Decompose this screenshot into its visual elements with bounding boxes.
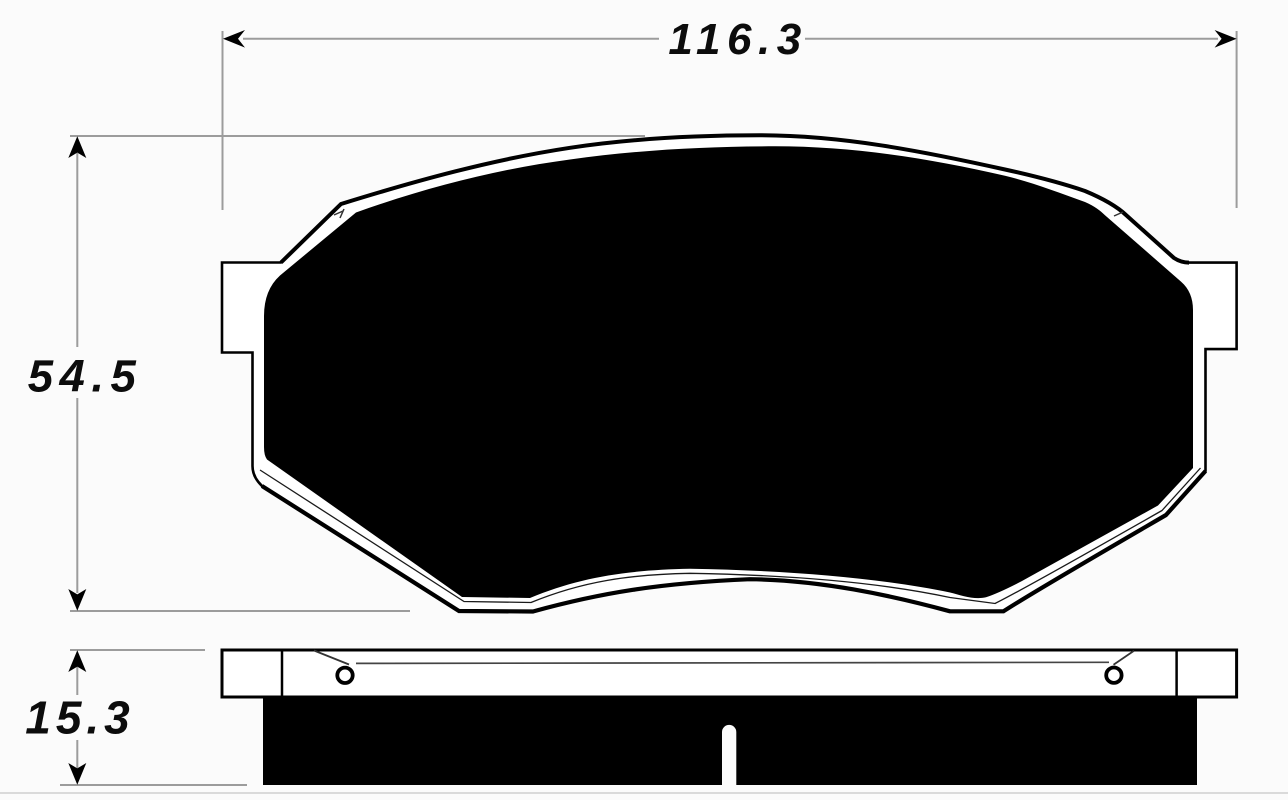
svg-text:116.3: 116.3 bbox=[668, 15, 807, 64]
svg-text:15.3: 15.3 bbox=[25, 692, 135, 744]
svg-text:54.5: 54.5 bbox=[28, 351, 143, 402]
